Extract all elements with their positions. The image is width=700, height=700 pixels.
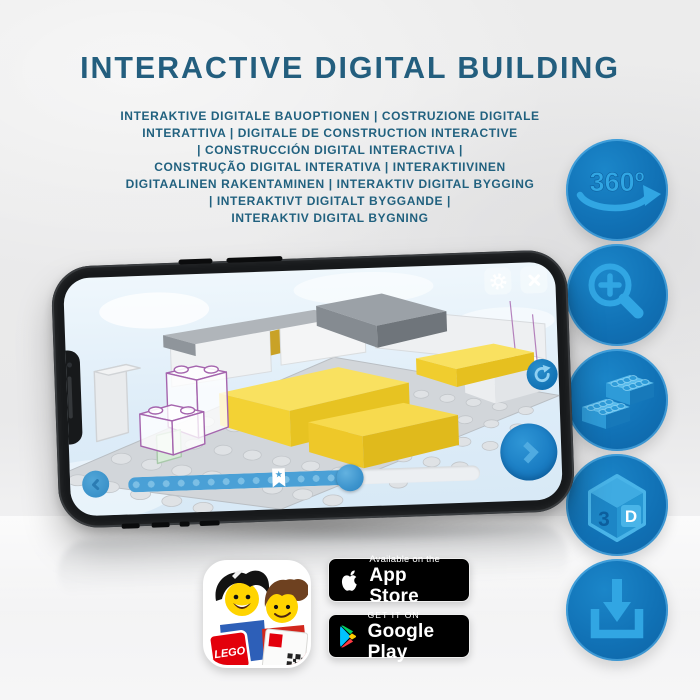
brick-upper: [606, 375, 654, 405]
app-store-badge[interactable]: Available on the App Store: [328, 558, 470, 602]
feature-download: [566, 559, 668, 661]
chevron-right-icon: [513, 436, 544, 467]
subtitle-line: INTERATTIVA | DIGITALE DE CONSTRUCTION I…: [40, 125, 620, 142]
lego-bricks-icon: [566, 349, 668, 451]
3d-cube-icon: 3 D: [566, 454, 668, 556]
google-play-tagline: GET IT ON: [368, 610, 459, 621]
subtitle-line: INTERAKTIVE DIGITALE BAUOPTIONEN | COSTR…: [40, 108, 620, 125]
phone-notch: [63, 350, 83, 445]
download-icon: [566, 559, 668, 661]
google-play-name: Google Play: [368, 621, 459, 663]
label-d: D: [625, 507, 637, 526]
subtitle-line: | CONSTRUCCIÓN DIGITAL INTERACTIVA |: [40, 142, 620, 159]
speaker-slot: [122, 523, 140, 529]
brick-lower: [582, 399, 630, 429]
subtitle-line: INTERAKTIV DIGITAL BYGNING: [40, 210, 620, 227]
chevron-left-icon: [87, 476, 104, 493]
camera-dot: [67, 362, 72, 367]
google-play-badge[interactable]: GET IT ON Google Play: [328, 614, 470, 658]
power-button: [226, 256, 282, 263]
volume-button: [178, 258, 212, 264]
apple-icon: [339, 567, 360, 594]
lego-app-icon-art: LEGO: [206, 563, 308, 665]
page-title: INTERACTIVE DIGITAL BUILDING: [7, 50, 693, 86]
rotate-arrow-icon: [531, 364, 553, 386]
subtitle-line: DIGITAALINEN RAKENTAMINEN | INTERAKTIV D…: [40, 176, 620, 193]
close-icon: [525, 270, 544, 289]
speaker-slot: [200, 520, 220, 526]
phone-mockup: ★: [51, 249, 576, 529]
speaker-slot: [152, 522, 170, 528]
magnifier-plus-icon: [566, 244, 668, 346]
promo-image: { "title": "INTERACTIVE DIGITAL BUILDING…: [0, 0, 700, 700]
feature-360-rotation: 360º: [566, 139, 668, 241]
instruction-booklet: [262, 629, 308, 665]
feature-3d: 3 D: [566, 454, 668, 556]
app-store-tagline: Available on the: [369, 554, 459, 565]
app-store-name: App Store: [369, 565, 459, 607]
label-360: 360º: [590, 167, 645, 197]
app-screen: ★: [63, 261, 563, 516]
rotate-360-icon: 360º: [566, 139, 668, 241]
close-button[interactable]: [520, 266, 548, 294]
feature-bricks: [566, 349, 668, 451]
subtitle-multilingual: INTERAKTIVE DIGITALE BAUOPTIONEN | COSTR…: [40, 108, 620, 227]
settings-button[interactable]: [484, 267, 512, 295]
subtitle-line: CONSTRUÇÃO DIGITAL INTERATIVA | INTERAKT…: [40, 159, 620, 176]
feature-zoom: [566, 244, 668, 346]
speaker-slit: [67, 376, 72, 418]
subtitle-line: | INTERAKTIVT DIGITALT BYGGANDE |: [40, 193, 620, 210]
port-slot: [180, 521, 190, 526]
lego-app-icon[interactable]: LEGO: [203, 560, 311, 668]
google-play-icon: [339, 622, 359, 651]
label-3: 3: [598, 508, 610, 531]
lego-logo: LEGO: [209, 631, 251, 665]
gear-icon: [487, 271, 508, 292]
